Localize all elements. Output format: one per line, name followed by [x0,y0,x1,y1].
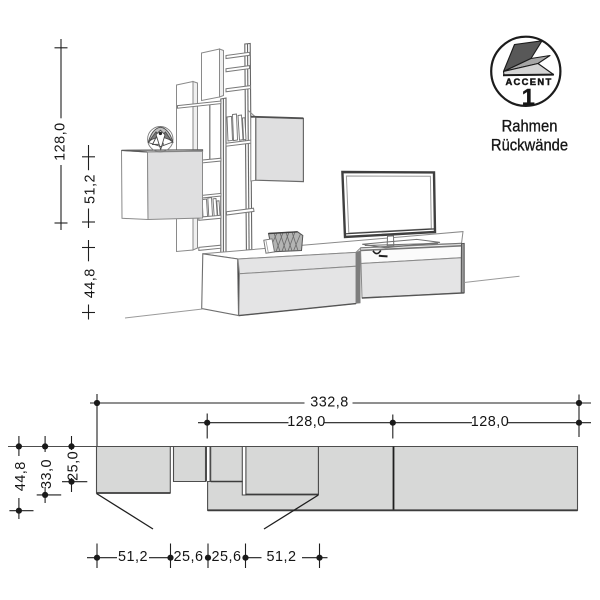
svg-text:128,0: 128,0 [287,414,326,430]
svg-text:128,0: 128,0 [471,414,510,430]
svg-text:25,0: 25,0 [65,451,81,481]
svg-text:51,2: 51,2 [266,549,296,565]
svg-text:128,0: 128,0 [52,122,68,161]
svg-text:51,2: 51,2 [118,549,148,565]
svg-text:Rahmen: Rahmen [502,117,558,135]
svg-text:25,6: 25,6 [211,549,241,565]
svg-text:Rückwände: Rückwände [491,136,568,154]
svg-text:51,2: 51,2 [82,174,98,204]
svg-text:44,8: 44,8 [13,461,29,491]
svg-text:33,0: 33,0 [39,459,55,489]
svg-text:44,8: 44,8 [82,268,98,298]
svg-text:332,8: 332,8 [310,394,349,410]
svg-text:1: 1 [522,84,535,110]
svg-text:25,6: 25,6 [173,549,203,565]
